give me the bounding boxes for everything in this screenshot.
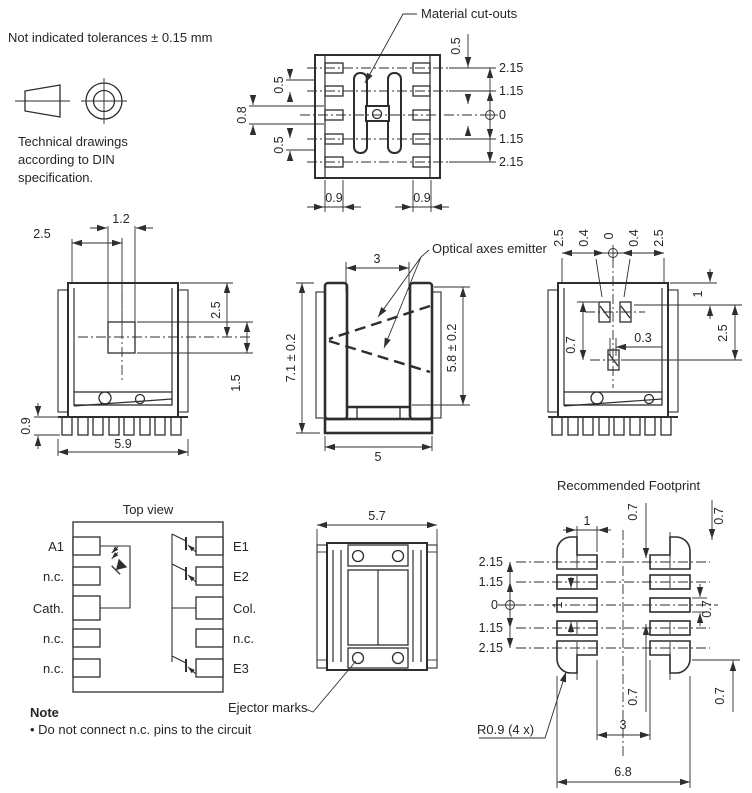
fp-dim-overall-68: 6.8 <box>614 765 631 779</box>
fp-dim-zero: 0 <box>491 598 498 612</box>
din-note-line3: specification. <box>18 170 93 185</box>
pin-label-nc1: n.c. <box>43 569 64 584</box>
pin-diagram-title: Top view <box>123 502 174 517</box>
dim-rear-03: 0.3 <box>634 331 651 345</box>
din-note-line2: according to DIN <box>18 152 115 167</box>
footprint-view: Recommended Footprint <box>477 478 740 788</box>
dim-front-25-top: 2.5 <box>33 227 50 241</box>
dim-top-right-05: 0.5 <box>449 37 463 54</box>
dim-bottom-57: 5.7 <box>368 509 385 523</box>
dim-rear-1: 1 <box>691 290 705 297</box>
top-outline-view: 2.15 1.15 0 1.15 2.15 0.5 0.5 0.5 0.8 0.… <box>235 6 523 212</box>
bottom-view: 5.7 Ejector marks <box>228 509 437 715</box>
pin-label-nc3: n.c. <box>43 661 64 676</box>
fp-dim-115-top: 1.15 <box>479 575 503 589</box>
pin-pads <box>73 537 223 677</box>
rear-view: 2.5 0.4 0 0.4 2.5 0.7 0.3 1 2.5 <box>548 229 742 435</box>
fp-dim-07-top-right: 0.7 <box>712 507 726 524</box>
ejector-marks-label: Ejector marks <box>228 700 308 715</box>
dim-side-58: 5.8 ± 0.2 <box>445 324 459 373</box>
pin-diagram: Top view <box>33 502 256 692</box>
din-note-line1: Technical drawings <box>18 134 128 149</box>
fp-dim-row-pitch: 1 <box>551 601 565 608</box>
dim-side-71: 7.1 ± 0.2 <box>284 334 298 383</box>
dim-rear-25-right: 2.5 <box>652 229 666 246</box>
pin-label-col: Col. <box>233 601 256 616</box>
dim-front-09: 0.9 <box>19 417 33 434</box>
pin-label-nc2: n.c. <box>43 631 64 646</box>
led-symbol <box>100 546 133 608</box>
dim-front-15: 1.5 <box>229 374 243 391</box>
note-block: Note • Do not connect n.c. pins to the c… <box>30 705 252 737</box>
din-note: Technical drawings according to DIN spec… <box>18 134 128 185</box>
phototransistor-symbols <box>172 534 196 674</box>
front-leads <box>62 417 181 435</box>
dim-left-05-lower: 0.5 <box>272 136 286 153</box>
dim-front-12: 1.2 <box>112 212 129 226</box>
note-text: • Do not connect n.c. pins to the circui… <box>30 722 252 737</box>
fp-dim-pad-width: 1 <box>584 514 591 528</box>
dim-front-25-right: 2.5 <box>209 301 223 318</box>
optical-axes-label: Optical axes emitter <box>432 241 548 256</box>
pin-label-e3: E3 <box>233 661 249 676</box>
technical-drawing-sheet: Not indicated tolerances ± 0.15 mm Techn… <box>0 0 752 793</box>
dim-rear-25-span: 2.5 <box>716 324 730 341</box>
dim-right-115-bottom: 1.15 <box>499 132 523 146</box>
dim-right-115-top: 1.15 <box>499 84 523 98</box>
dim-rear-25-left: 2.5 <box>552 229 566 246</box>
dim-bottom-09-right: 0.9 <box>413 191 430 205</box>
fp-dim-07-top-center: 0.7 <box>626 503 640 520</box>
fp-dim-215-bottom: 2.15 <box>479 641 503 655</box>
dim-front-59: 5.9 <box>114 437 131 451</box>
side-view: Optical axes emitter 3 7.1 ± 0.2 5.8 ± 0… <box>284 241 548 464</box>
pin-label-e2: E2 <box>233 569 249 584</box>
fp-dim-gap-3: 3 <box>620 718 627 732</box>
dim-left-08: 0.8 <box>235 106 249 123</box>
material-cutout-shape <box>354 73 401 153</box>
dim-side-5: 5 <box>375 450 382 464</box>
pin-label-nc4: n.c. <box>233 631 254 646</box>
tolerance-note-text: Not indicated tolerances ± 0.15 mm <box>8 30 212 45</box>
pin-label-a1: A1 <box>48 539 64 554</box>
dim-right-215-bottom: 2.15 <box>499 155 523 169</box>
footprint-radius-label: R0.9 (4 x) <box>477 722 534 737</box>
pin-label-e1: E1 <box>233 539 249 554</box>
dim-left-05-upper: 0.5 <box>272 76 286 93</box>
dim-right-zero: 0 <box>499 108 506 122</box>
dim-rear-04-right: 0.4 <box>627 229 641 246</box>
pin-label-cath: Cath. <box>33 601 64 616</box>
dim-rear-04-left: 0.4 <box>577 229 591 246</box>
front-view: 1.2 2.5 2.5 1.5 0.9 5.9 <box>19 212 253 456</box>
fp-dim-07-bottom-right: 0.7 <box>713 687 727 704</box>
drawing-canvas: Not indicated tolerances ± 0.15 mm Techn… <box>0 0 752 793</box>
dim-rear-07: 0.7 <box>564 336 578 353</box>
front-window <box>108 322 135 353</box>
rear-leads <box>552 417 671 435</box>
dim-bottom-09-left: 0.9 <box>325 191 342 205</box>
dim-rear-zero: 0 <box>602 232 616 239</box>
material-cutouts-label: Material cut-outs <box>421 6 518 21</box>
projection-symbol <box>15 78 127 124</box>
tolerance-note: Not indicated tolerances ± 0.15 mm <box>8 30 212 45</box>
note-title: Note <box>30 705 59 720</box>
fp-dim-07-bottom-center: 0.7 <box>626 688 640 705</box>
dim-side-3: 3 <box>374 252 381 266</box>
fp-dim-215-top: 2.15 <box>479 555 503 569</box>
footprint-title: Recommended Footprint <box>557 478 700 493</box>
dim-right-215-top: 2.15 <box>499 61 523 75</box>
fp-dim-115-bottom: 1.15 <box>479 621 503 635</box>
fp-dim-07-pad-height: 0.7 <box>700 600 714 617</box>
